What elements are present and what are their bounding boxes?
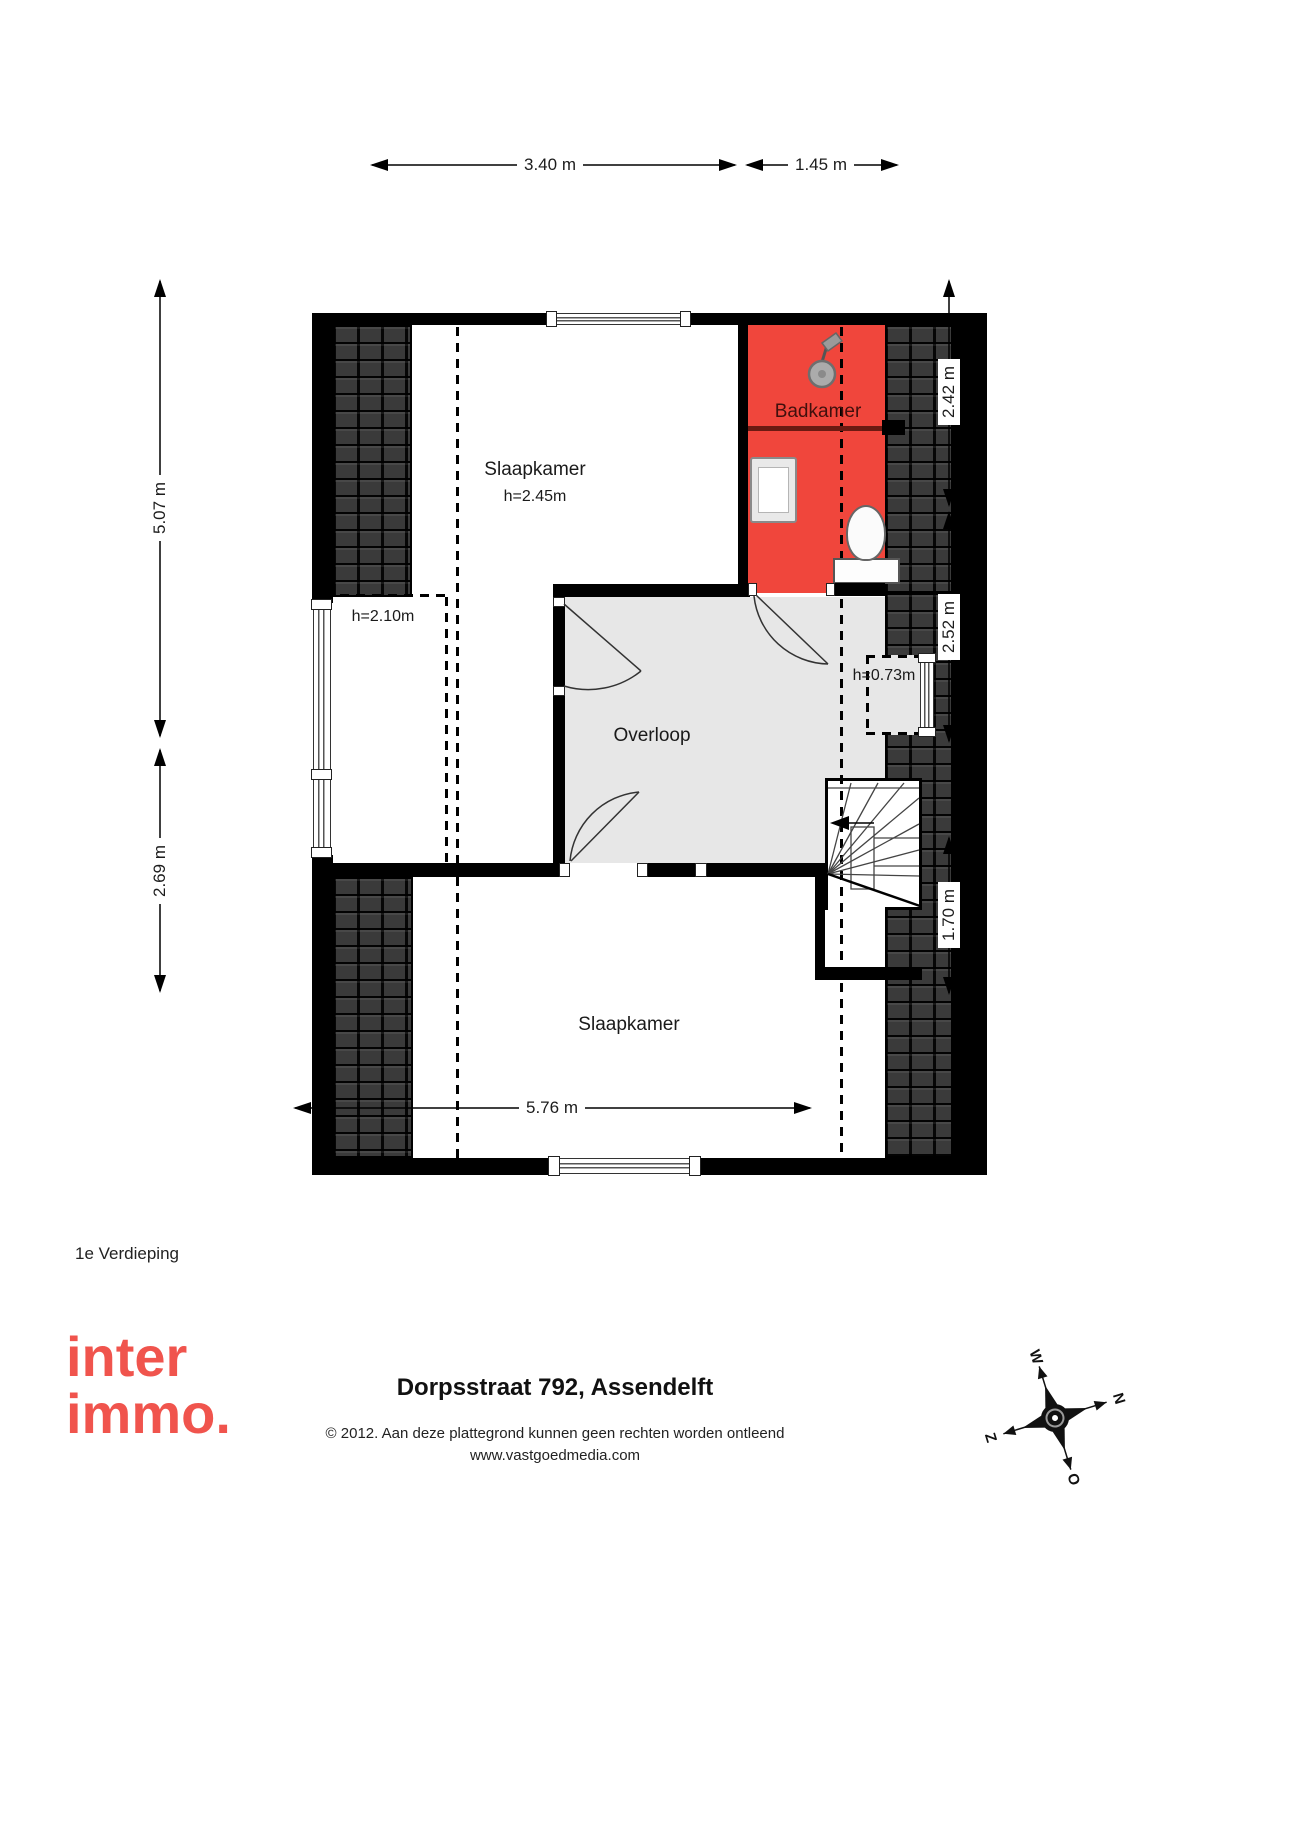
dim-top-b: 1.45 m [788, 154, 854, 176]
logo-line1: inter [66, 1328, 231, 1385]
compass-n-label: N [1109, 1391, 1128, 1406]
window-left-cap-top [311, 599, 332, 610]
niche-dash-top [866, 655, 926, 658]
window-left [313, 600, 331, 857]
wall-bathroom-left [738, 325, 748, 593]
window-top-cap-left [546, 311, 557, 327]
wall-landing-left [553, 597, 565, 863]
floorplan-page: N O Z W Slaapkamer h=2.45m Badkamer Over… [0, 0, 1300, 1838]
dim-left-a: 5.07 m [149, 475, 171, 541]
window-niche-cap-top [918, 653, 936, 663]
wall-landing-top-b [833, 583, 885, 596]
window-top [548, 313, 690, 325]
room-label-bedroom-bottom: Slaapkamer [578, 1014, 679, 1036]
height-line-left-lower [456, 877, 459, 1158]
knee-wall-dash-vert [445, 597, 448, 863]
height-line-left [456, 327, 459, 863]
wall-top-left [312, 313, 548, 325]
bathroom-door-jamb-right [826, 583, 835, 596]
compass-e-label: O [1063, 1471, 1083, 1487]
bedroom-door-jamb-bottom [553, 686, 565, 696]
roof-slope-hatch-bottom-left [333, 877, 413, 1158]
wall-joint-cap [695, 863, 707, 877]
knee-height-label-left: h=2.10m [352, 608, 415, 626]
wall-right [953, 313, 987, 1175]
room-label-landing: Overloop [613, 725, 690, 747]
knee-height-label-right: h=0.73m [853, 667, 916, 685]
bedroom-door-jamb-top [553, 597, 565, 607]
bedroom2-door-jamb-right [637, 863, 648, 877]
sink-basin [758, 467, 789, 513]
logo: inter immo. [66, 1328, 231, 1442]
room-label-bedroom-top: Slaapkamer [484, 459, 585, 481]
wall-stair-enclosure-bottom [815, 967, 922, 980]
website-text: www.vastgoedmedia.com [255, 1447, 855, 1464]
window-niche [920, 655, 934, 735]
wall-middle-b [648, 863, 695, 877]
wall-middle-c [707, 863, 825, 877]
dim-right-c: 1.70 m [938, 882, 960, 948]
stair-enclosure-floor [828, 907, 885, 967]
floor-label: 1e Verdieping [75, 1244, 179, 1264]
niche-dash-bottom [866, 732, 926, 735]
wall-middle-a [333, 863, 560, 877]
bedroom2-door-jamb-left [559, 863, 570, 877]
dim-top-a: 3.40 m [517, 154, 583, 176]
address-title: Dorpsstraat 792, Assendelft [255, 1374, 855, 1402]
wall-left-lower [312, 855, 333, 1175]
window-left-cap-bottom [311, 847, 332, 858]
window-bottom-cap-left [548, 1156, 560, 1176]
window-bottom-cap-right [689, 1156, 701, 1176]
dim-bottom: 5.76 m [519, 1097, 585, 1119]
logo-line2: immo. [66, 1385, 231, 1442]
window-niche-cap-bottom [918, 727, 936, 737]
knee-wall-dash-horiz [340, 594, 447, 597]
sink [750, 457, 797, 523]
room-label-bathroom: Badkamer [775, 401, 862, 423]
window-top-cap-right [680, 311, 691, 327]
toilet-bowl [846, 505, 886, 561]
roof-slope-hatch-top-left [333, 325, 412, 597]
dim-left-b: 2.69 m [149, 838, 171, 904]
dim-right-a: 2.42 m [938, 359, 960, 425]
height-label-bedroom-top: h=2.45m [504, 488, 567, 506]
copyright-text: © 2012. Aan deze plattegrond kunnen geen… [255, 1425, 855, 1442]
plan-overlay: N O Z W [0, 0, 1300, 1838]
wall-stair-enclosure-left [815, 877, 825, 967]
compass-icon: N O Z W [962, 1328, 1148, 1507]
wall-top-right [690, 313, 987, 325]
wall-bottom-left [312, 1158, 550, 1175]
wall-landing-top-a [553, 584, 750, 597]
wall-left-upper [312, 313, 333, 603]
dim-right-b: 2.52 m [938, 594, 960, 660]
compass-w-label: W [1026, 1348, 1047, 1367]
bathroom-divider-line [748, 426, 885, 431]
compass-s-label: Z [981, 1431, 1000, 1445]
toilet-tank [833, 558, 900, 584]
height-line-right [840, 327, 843, 1158]
bathroom-door-jamb-left [748, 583, 757, 596]
window-bottom [550, 1158, 700, 1174]
window-left-mullion [311, 769, 332, 780]
wall-bottom-right [700, 1158, 987, 1175]
bathroom-divider-stub [882, 420, 905, 435]
